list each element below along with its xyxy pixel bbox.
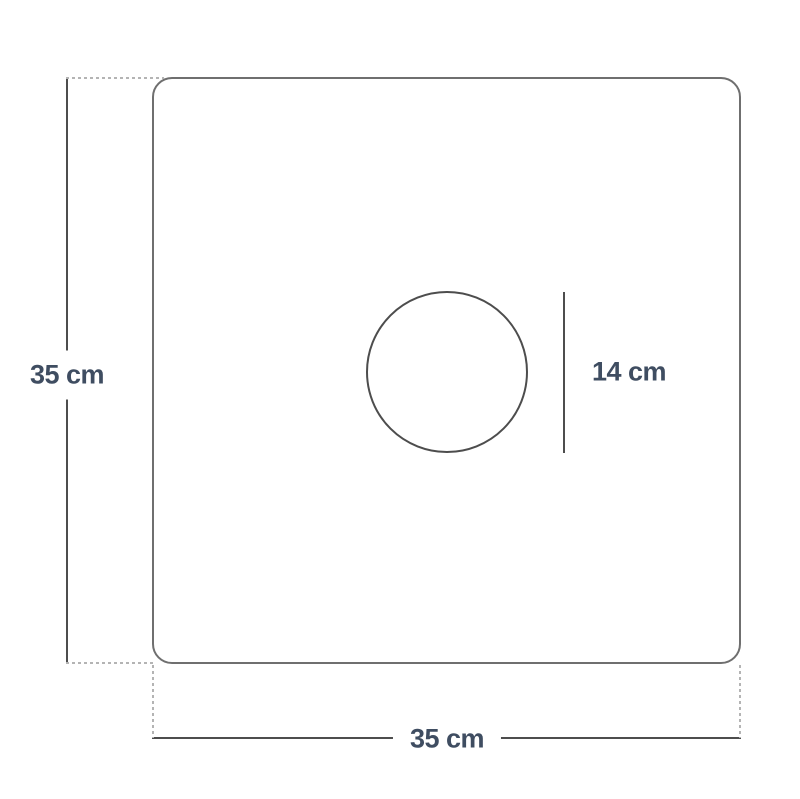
hole-diameter-dimension-line: [563, 292, 565, 453]
extension-line-vertical-left: [152, 665, 154, 738]
dimension-diagram: 35 cm 35 cm 14 cm: [0, 0, 800, 799]
height-dimension-label: 35 cm: [26, 351, 108, 400]
width-dimension-label: 35 cm: [393, 724, 501, 755]
extension-line-top: [66, 77, 164, 79]
extension-line-vertical-right: [739, 665, 741, 738]
hole-diameter-label: 14 cm: [592, 359, 666, 386]
extension-line-bottom-left: [66, 662, 154, 664]
hole-circle: [366, 291, 528, 453]
